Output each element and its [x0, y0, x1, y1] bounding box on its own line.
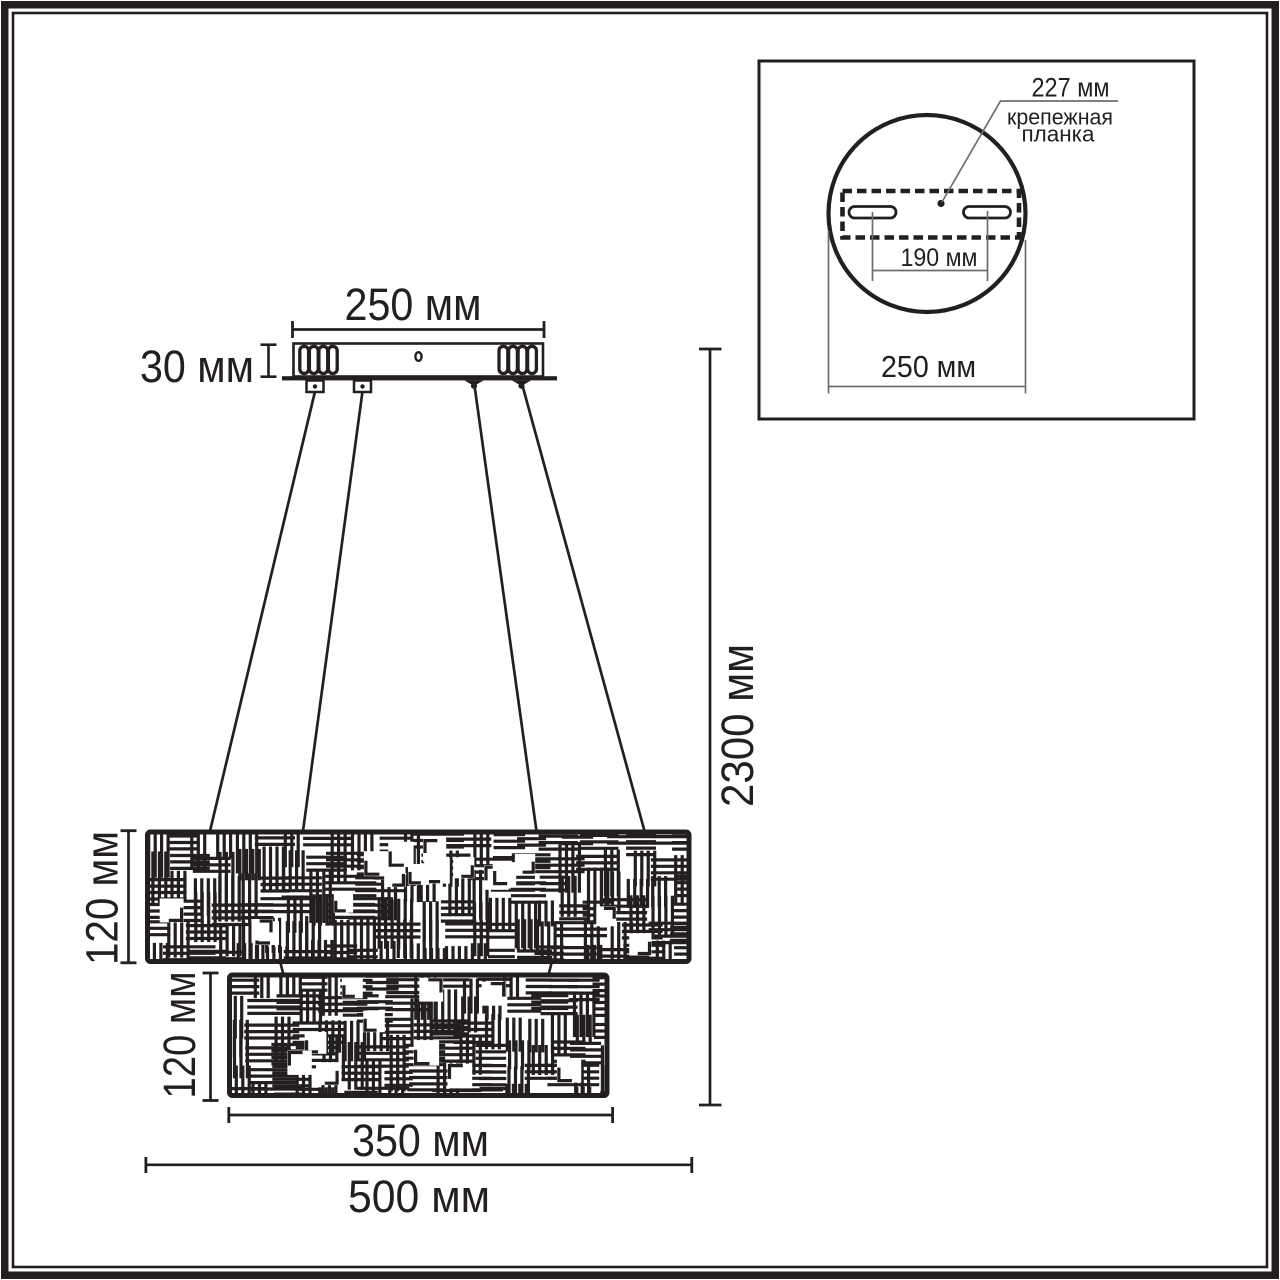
- svg-text:500 мм: 500 мм: [348, 1171, 490, 1222]
- svg-text:120 мм: 120 мм: [77, 831, 128, 965]
- svg-text:227 мм: 227 мм: [1032, 73, 1110, 103]
- svg-text:2300 мм: 2300 мм: [712, 644, 763, 807]
- svg-text:планка: планка: [1022, 122, 1096, 147]
- svg-text:250 мм: 250 мм: [881, 349, 976, 384]
- svg-text:30 мм: 30 мм: [140, 341, 254, 392]
- svg-text:250 мм: 250 мм: [345, 279, 482, 330]
- svg-text:350 мм: 350 мм: [352, 1115, 489, 1166]
- svg-text:190 мм: 190 мм: [901, 244, 978, 272]
- svg-text:120 мм: 120 мм: [154, 972, 205, 1099]
